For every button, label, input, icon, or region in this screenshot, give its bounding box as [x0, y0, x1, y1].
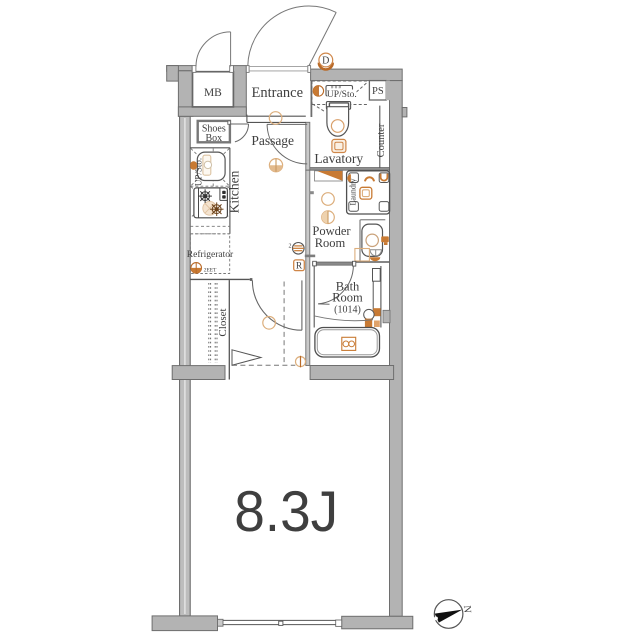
svg-text:Passage: Passage [251, 133, 294, 148]
svg-text:MB: MB [204, 87, 222, 99]
svg-text:Refrigerator: Refrigerator [187, 249, 234, 260]
svg-text:PS: PS [372, 86, 384, 97]
svg-text:Box: Box [205, 133, 222, 144]
svg-text:2: 2 [289, 244, 292, 250]
svg-text:8.3J: 8.3J [234, 480, 338, 544]
svg-text:(1014): (1014) [334, 304, 361, 315]
svg-text:Room: Room [332, 291, 363, 305]
svg-text:D: D [322, 56, 329, 67]
svg-text:Entrance: Entrance [252, 85, 304, 101]
svg-text:2EET: 2EET [204, 268, 217, 274]
svg-text:R: R [296, 262, 303, 272]
svg-text:Closet: Closet [217, 308, 229, 336]
svg-text:# # #: # # # [331, 86, 342, 91]
svg-text:N: N [461, 605, 473, 614]
svg-text:Laundry: Laundry [348, 178, 357, 205]
svg-text:Room: Room [315, 236, 346, 250]
svg-text:Lavatory: Lavatory [314, 151, 363, 166]
svg-text:Counter: Counter [376, 123, 387, 157]
svg-text:UP/Sto.: UP/Sto. [327, 90, 357, 100]
svg-text:Kitchen: Kitchen [226, 170, 241, 213]
